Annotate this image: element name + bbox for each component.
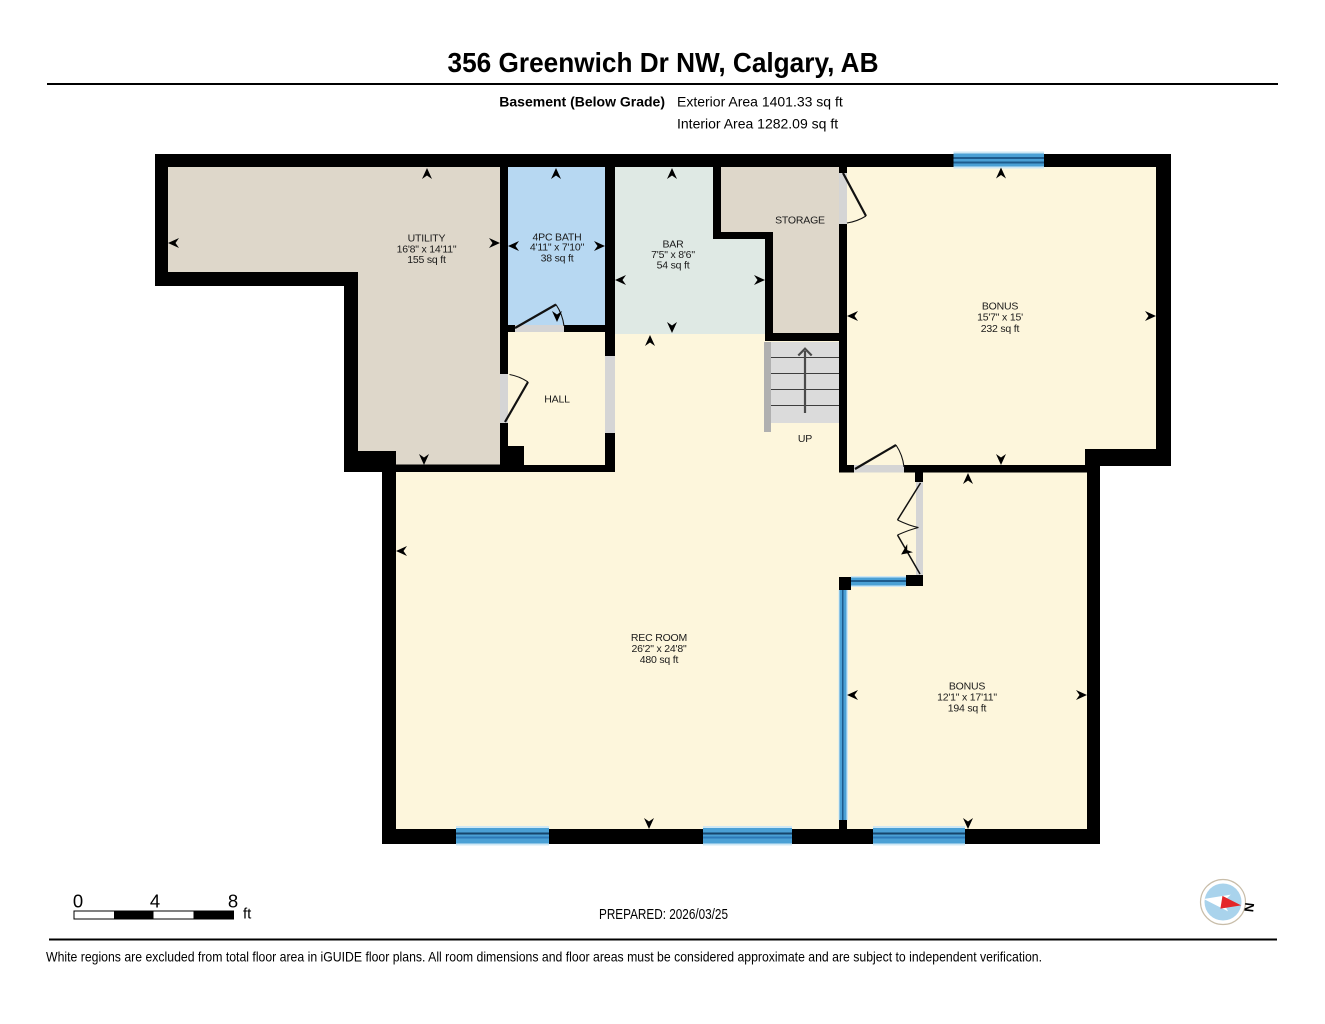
svg-text:PREPARED: 2026/03/25: PREPARED: 2026/03/25 (599, 907, 728, 923)
svg-text:4: 4 (150, 891, 160, 912)
svg-text:356 Greenwich Dr NW, Calgary,: 356 Greenwich Dr NW, Calgary, AB (448, 47, 879, 78)
svg-text:ft: ft (243, 906, 252, 923)
svg-text:HALL: HALL (544, 394, 570, 406)
svg-text:155 sq ft: 155 sq ft (407, 254, 446, 266)
svg-text:15'7" x 15': 15'7" x 15' (977, 312, 1023, 324)
svg-text:UP: UP (798, 433, 812, 445)
svg-text:8: 8 (228, 891, 238, 912)
svg-text:Interior Area 1282.09 sq ft: Interior Area 1282.09 sq ft (677, 116, 838, 132)
svg-text:38 sq ft: 38 sq ft (541, 252, 574, 264)
svg-text:N: N (1241, 902, 1257, 913)
svg-text:Basement (Below Grade): Basement (Below Grade) (499, 94, 665, 110)
svg-text:480 sq ft: 480 sq ft (640, 654, 679, 666)
svg-text:0: 0 (73, 891, 83, 912)
svg-text:54 sq ft: 54 sq ft (657, 260, 690, 272)
svg-text:STORAGE: STORAGE (775, 215, 825, 227)
svg-text:194 sq ft: 194 sq ft (948, 703, 987, 715)
svg-text:Exterior Area 1401.33 sq ft: Exterior Area 1401.33 sq ft (677, 94, 843, 110)
svg-text:232 sq ft: 232 sq ft (981, 323, 1020, 335)
svg-text:White regions are excluded fro: White regions are excluded from total fl… (46, 949, 1042, 965)
